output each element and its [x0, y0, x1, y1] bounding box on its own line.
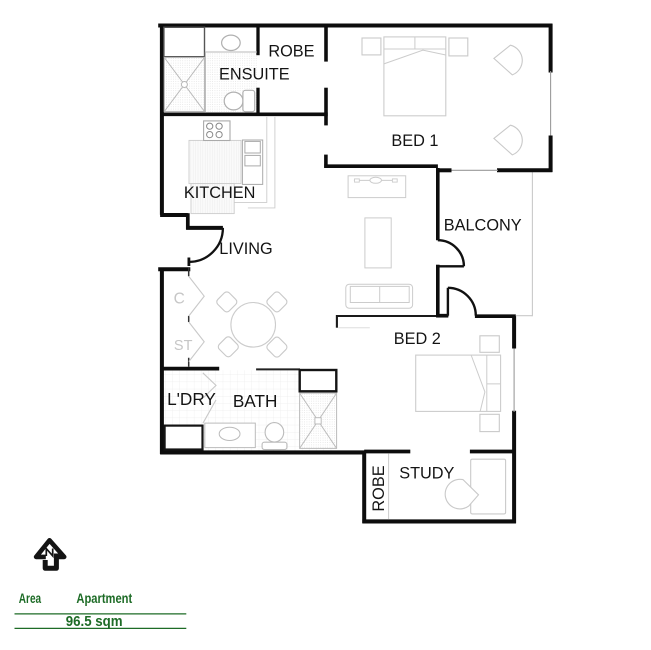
svg-text:ROBE: ROBE: [268, 42, 314, 60]
svg-text:BED 1: BED 1: [391, 132, 438, 150]
svg-text:ENSUITE: ENSUITE: [219, 66, 290, 84]
svg-text:Area: Area: [19, 590, 41, 606]
svg-text:STUDY: STUDY: [399, 465, 454, 483]
svg-text:BATH: BATH: [233, 391, 278, 411]
svg-text:C: C: [174, 291, 185, 308]
svg-text:ST: ST: [174, 338, 193, 354]
svg-text:BALCONY: BALCONY: [444, 217, 522, 235]
svg-text:L'DRY: L'DRY: [167, 389, 216, 409]
svg-text:ROBE: ROBE: [370, 465, 388, 511]
svg-text:LIVING: LIVING: [219, 240, 272, 258]
svg-text:96.5 sqm: 96.5 sqm: [66, 614, 123, 630]
svg-text:Apartment: Apartment: [76, 590, 132, 606]
svg-text:KITCHEN: KITCHEN: [184, 184, 255, 202]
svg-text:BED 2: BED 2: [394, 330, 441, 348]
